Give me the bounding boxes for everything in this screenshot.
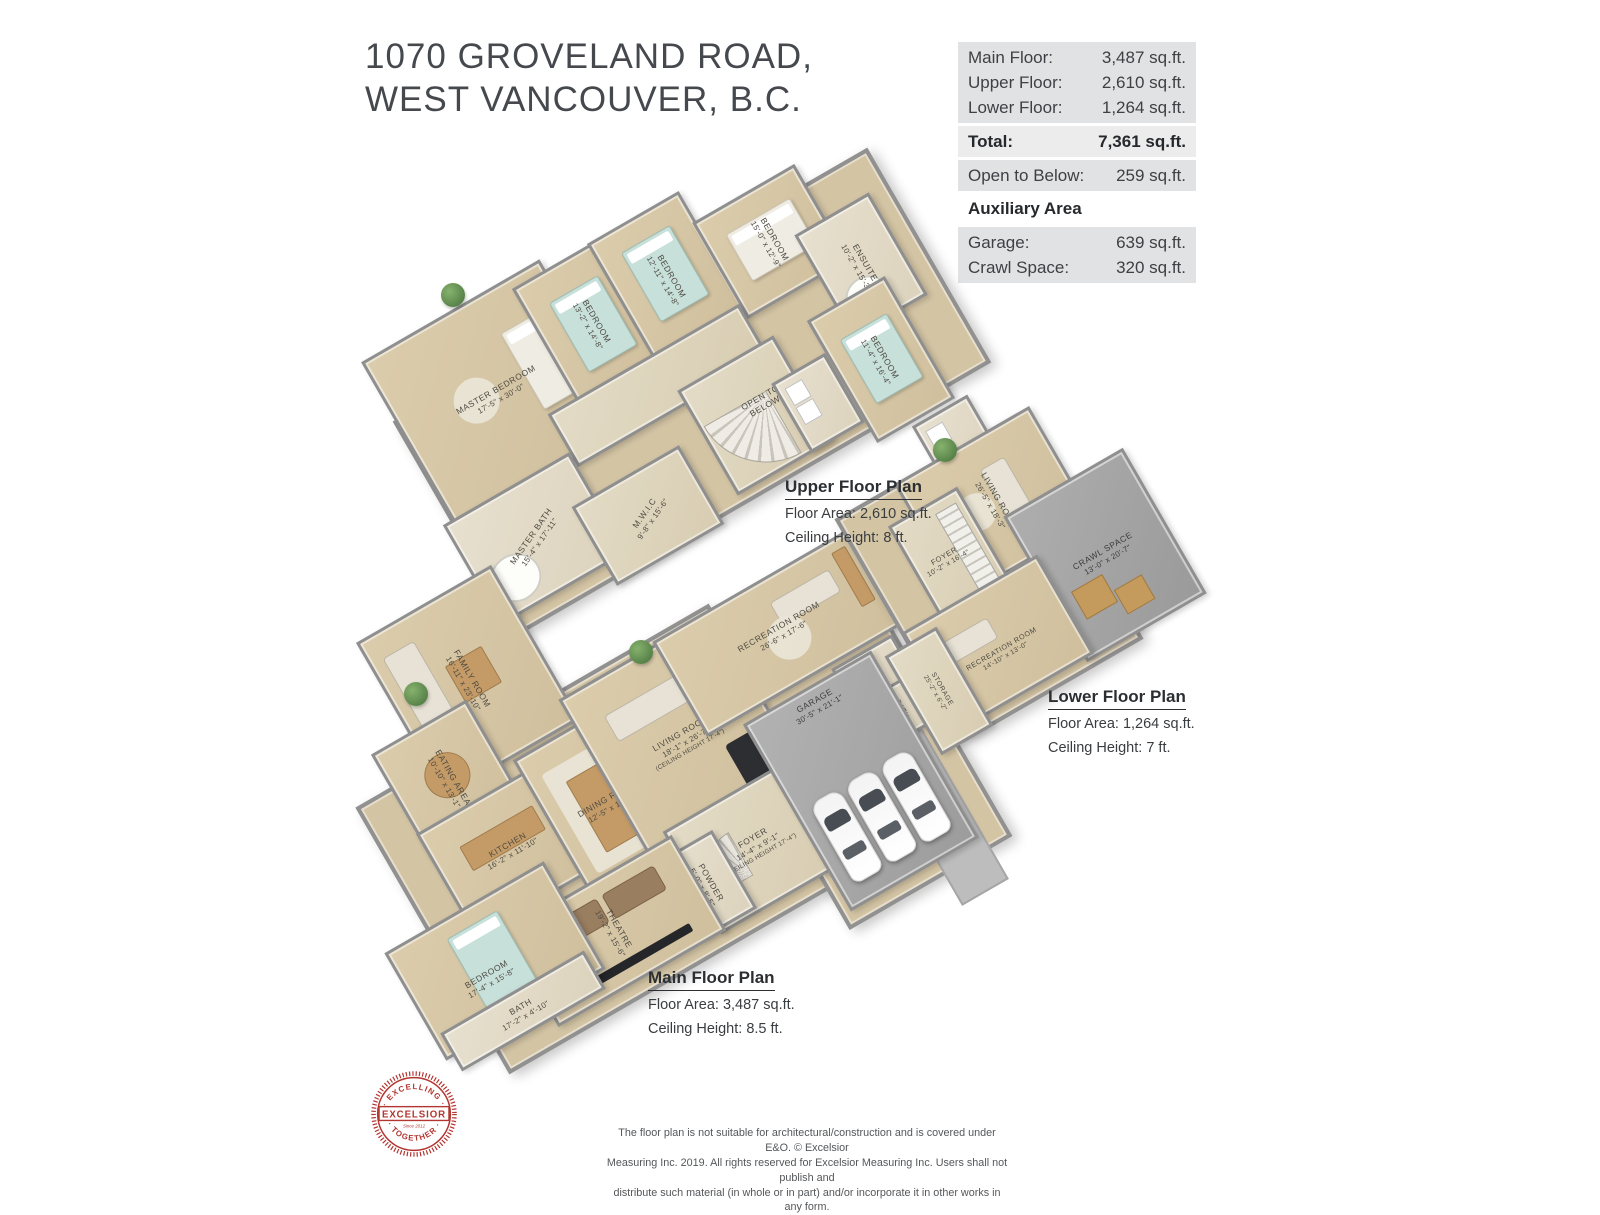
coffee-table <box>445 646 502 703</box>
auxiliary-heading: Auxiliary Area <box>968 197 1196 221</box>
caption-title: Upper Floor Plan <box>785 477 922 500</box>
row-label: Total: <box>968 129 1013 154</box>
rug <box>759 608 819 668</box>
plant <box>404 682 428 706</box>
rug <box>445 369 508 432</box>
table <box>416 744 479 807</box>
storage-box <box>1114 574 1156 614</box>
row-label: Main Floor: <box>968 45 1053 70</box>
caption-area: Floor Area: 1,264 sq.ft. <box>1048 715 1195 734</box>
caption-ceiling: Ceiling Height: 8 ft. <box>785 529 932 548</box>
disclaimer-line: Measuring Inc. 2019. All rights reserved… <box>606 1156 1008 1186</box>
upper-floor-caption: Upper Floor Plan Floor Area: 2,610 sq.ft… <box>785 477 932 548</box>
caption-area: Floor Area: 3,487 sq.ft. <box>648 996 795 1015</box>
row-label: Open to Below: <box>968 163 1084 188</box>
caption-title: Main Floor Plan <box>648 968 775 991</box>
title-line-1: 1070 GROVELAND ROAD, <box>365 36 813 79</box>
row-label: Crawl Space: <box>968 255 1069 280</box>
table-row: Upper Floor: 2,610 sq.ft. <box>968 70 1186 95</box>
auxiliary-block: Garage: 639 sq.ft. Crawl Space: 320 sq.f… <box>958 227 1196 283</box>
row-label: Lower Floor: <box>968 95 1062 120</box>
row-label: Garage: <box>968 230 1029 255</box>
page-title: 1070 GROVELAND ROAD, WEST VANCOUVER, B.C… <box>365 36 813 121</box>
excelsior-logo-badge: · EXCELLING · · TOGETHER · EXCELSIOR Sin… <box>368 1068 460 1160</box>
plant <box>629 640 653 664</box>
row-value: 3,487 sq.ft. <box>1102 45 1186 70</box>
caption-title: Lower Floor Plan <box>1048 687 1186 710</box>
plant <box>441 283 465 307</box>
plant <box>933 438 957 462</box>
row-value: 2,610 sq.ft. <box>1102 70 1186 95</box>
bed <box>840 313 924 404</box>
open-below-row: Open to Below: 259 sq.ft. <box>958 160 1196 191</box>
total-row: Total: 7,361 sq.ft. <box>958 126 1196 157</box>
kitchen-island <box>459 805 546 871</box>
row-value: 259 sq.ft. <box>1116 163 1186 188</box>
main-floor-caption: Main Floor Plan Floor Area: 3,487 sq.ft.… <box>648 968 795 1039</box>
table-row: Lower Floor: 1,264 sq.ft. <box>968 95 1186 120</box>
area-summary-table: Main Floor: 3,487 sq.ft. Upper Floor: 2,… <box>958 42 1196 286</box>
logo-tagline-text: Since 2012 <box>403 1123 426 1128</box>
caption-ceiling: Ceiling Height: 7 ft. <box>1048 739 1195 758</box>
floor-plan-page: 1070 GROVELAND ROAD, WEST VANCOUVER, B.C… <box>0 0 1600 1200</box>
row-value: 1,264 sq.ft. <box>1102 95 1186 120</box>
row-value: 320 sq.ft. <box>1116 255 1186 280</box>
caption-ceiling: Ceiling Height: 8.5 ft. <box>648 1020 795 1039</box>
theatre-sofa <box>601 865 667 919</box>
row-value: 7,361 sq.ft. <box>1098 129 1186 154</box>
table-row: Main Floor: 3,487 sq.ft. <box>968 45 1186 70</box>
caption-area: Floor Area: 2,610 sq.ft. <box>785 505 932 524</box>
disclaimer-line: distribute such material (in whole or in… <box>606 1186 1008 1215</box>
excelsior-logo: · EXCELLING · · TOGETHER · EXCELSIOR Sin… <box>368 1068 460 1165</box>
storage-box <box>1071 574 1118 620</box>
row-label: Upper Floor: <box>968 70 1062 95</box>
row-value: 639 sq.ft. <box>1116 230 1186 255</box>
title-line-2: WEST VANCOUVER, B.C. <box>365 79 813 122</box>
bed <box>621 225 709 322</box>
table-row: Crawl Space: 320 sq.ft. <box>968 255 1186 280</box>
disclaimer: The floor plan is not suitable for archi… <box>606 1126 1008 1215</box>
logo-banner-text: EXCELSIOR <box>382 1109 446 1120</box>
table-row: Garage: 639 sq.ft. <box>968 230 1186 255</box>
lower-floor-caption: Lower Floor Plan Floor Area: 1,264 sq.ft… <box>1048 687 1195 758</box>
disclaimer-line: The floor plan is not suitable for archi… <box>606 1126 1008 1156</box>
floor-areas-block: Main Floor: 3,487 sq.ft. Upper Floor: 2,… <box>958 42 1196 123</box>
